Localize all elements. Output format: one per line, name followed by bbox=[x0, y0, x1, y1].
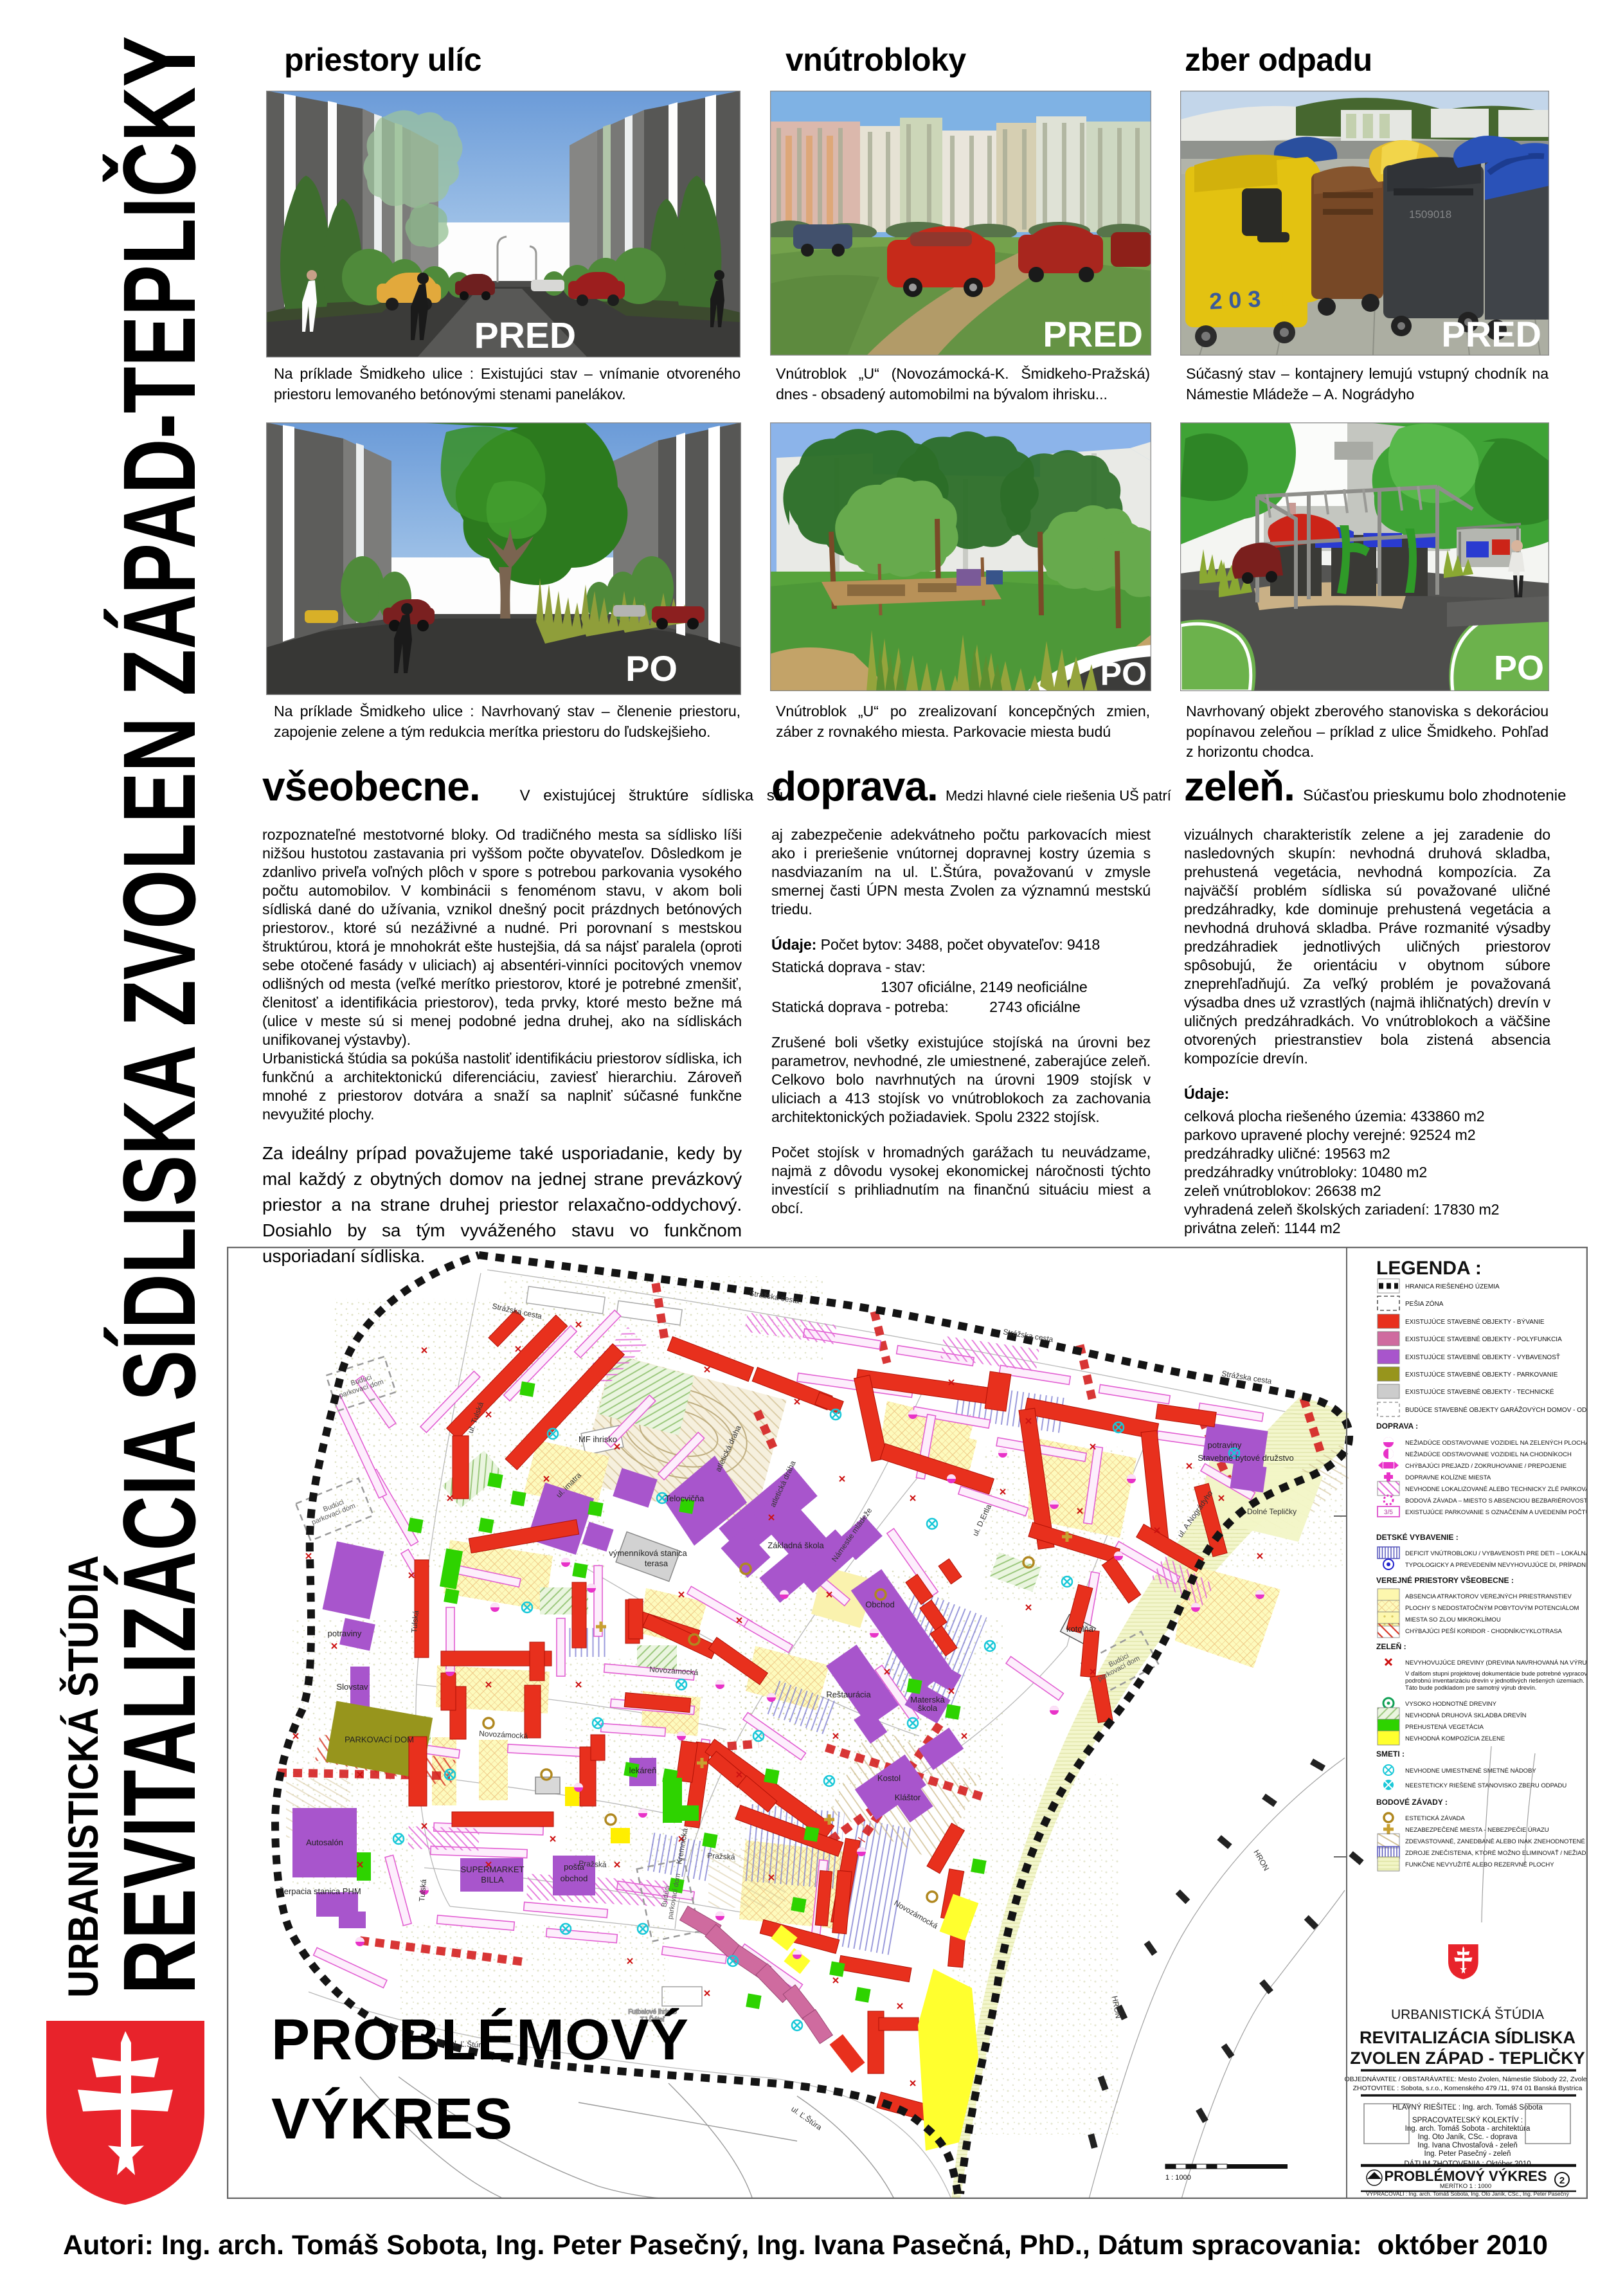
svg-text:1509018: 1509018 bbox=[1409, 208, 1451, 221]
svg-text:SPRACOVATEĽSKÝ KOLEKTÍV :: SPRACOVATEĽSKÝ KOLEKTÍV : bbox=[1412, 2116, 1523, 2124]
svg-text:Stavebné bytové družstvo: Stavebné bytové družstvo bbox=[1198, 1453, 1294, 1463]
svg-text:EXISTUJÚCE STAVEBNÉ OBJEKTY -: EXISTUJÚCE STAVEBNÉ OBJEKTY - TECHNICKÉ bbox=[1405, 1388, 1554, 1396]
svg-text:potraviny: potraviny bbox=[1208, 1440, 1242, 1450]
svg-text:ZDROJE ZNEČISTENIA, KTORÉ MOŽN: ZDROJE ZNEČISTENIA, KTORÉ MOŽNO ELIMINOV… bbox=[1405, 1850, 1588, 1857]
svg-text:VYSOKO HODNOTNÉ DREVINY: VYSOKO HODNOTNÉ DREVINY bbox=[1405, 1701, 1497, 1708]
svg-text:NEESTETICKY RIEŠENÉ STANOVISKO: NEESTETICKY RIEŠENÉ STANOVISKO ZBERU ODP… bbox=[1405, 1782, 1567, 1789]
svg-text:Kláštor: Kláštor bbox=[895, 1793, 921, 1802]
svg-text:potraviny: potraviny bbox=[328, 1629, 362, 1638]
svg-text:Dolné Tepličky: Dolné Tepličky bbox=[1247, 1507, 1297, 1516]
svg-text:NEŽIADÚCE ODSTAVOVANIE VOZIDIE: NEŽIADÚCE ODSTAVOVANIE VOZIDIEL NA CHODN… bbox=[1405, 1451, 1572, 1458]
svg-text:Ing. arch. Tomáš Sobota - arch: Ing. arch. Tomáš Sobota - architektúra bbox=[1405, 2125, 1531, 2133]
svg-text:URBANISTICKÁ ŠTÚDIA: URBANISTICKÁ ŠTÚDIA bbox=[59, 1555, 107, 1998]
svg-text:Autosalón: Autosalón bbox=[306, 1838, 343, 1847]
svg-text:Obchod: Obchod bbox=[865, 1600, 895, 1609]
svg-text:BILLA: BILLA bbox=[481, 1875, 504, 1885]
svg-text:Základná škola: Základná škola bbox=[768, 1541, 824, 1550]
svg-text:HRANICA RIEŠENÉHO ÚZEMIA: HRANICA RIEŠENÉHO ÚZEMIA bbox=[1405, 1282, 1500, 1290]
svg-text:DOPRAVA :: DOPRAVA : bbox=[1376, 1422, 1418, 1431]
svg-text:Ing. Oto Janík, CSc. - doprava: Ing. Oto Janík, CSc. - doprava bbox=[1418, 2133, 1518, 2141]
svg-text:Strážska cesta: Strážska cesta bbox=[1221, 1369, 1273, 1386]
svg-text:NEVHODNÁ KOMPOZÍCIA ZELENE: NEVHODNÁ KOMPOZÍCIA ZELENE bbox=[1405, 1735, 1505, 1742]
svg-text:2 0 3: 2 0 3 bbox=[1208, 285, 1261, 314]
svg-text:FUNKČNE NEVYUŽITÉ ALEBO REZERV: FUNKČNE NEVYUŽITÉ ALEBO REZERVNÉ PLOCHY bbox=[1405, 1861, 1554, 1868]
svg-text:SUPERMARKET: SUPERMARKET bbox=[461, 1865, 525, 1874]
svg-text:EXISTUJÚCE STAVEBNÉ OBJEKTY -: EXISTUJÚCE STAVEBNÉ OBJEKTY - VYBAVENOSŤ bbox=[1405, 1353, 1560, 1361]
svg-text:LEGENDA :: LEGENDA : bbox=[1376, 1258, 1482, 1279]
svg-text:lekáreň: lekáreň bbox=[629, 1766, 657, 1775]
svg-text:PROBLÉMOVÝ VÝKRES: PROBLÉMOVÝ VÝKRES bbox=[1384, 2168, 1547, 2184]
svg-text:BODOVÁ ZÁVADA – MIESTO S ABSEN: BODOVÁ ZÁVADA – MIESTO S ABSENCIOU BEZBA… bbox=[1405, 1497, 1588, 1505]
svg-text:ZDEVASTOVANÉ, ZANEDBANÉ ALEBO: ZDEVASTOVANÉ, ZANEDBANÉ ALEBO INAK ZNEHO… bbox=[1405, 1838, 1588, 1845]
svg-text:PO: PO bbox=[625, 648, 678, 689]
svg-text:BODOVÉ ZÁVADY :: BODOVÉ ZÁVADY : bbox=[1376, 1797, 1448, 1807]
svg-text:EXISTUJÚCE STAVEBNÉ OBJEKTY -: EXISTUJÚCE STAVEBNÉ OBJEKTY - POLYFUNKCI… bbox=[1405, 1335, 1562, 1343]
svg-text:NEVHODNE UMIESTNENÉ SMETNÉ NÁD: NEVHODNE UMIESTNENÉ SMETNÉ NÁDOBY bbox=[1405, 1767, 1536, 1775]
svg-text:výmenníková stanica: výmenníková stanica bbox=[609, 1548, 687, 1558]
svg-text:Slovstav: Slovstav bbox=[336, 1682, 368, 1692]
svg-text:PO: PO bbox=[1100, 656, 1147, 691]
svg-text:HRON: HRON bbox=[1252, 1849, 1271, 1873]
svg-text:CHÝBAJÚCI PREJAZD / ZOKRUHOVAN: CHÝBAJÚCI PREJAZD / ZOKRUHOVANIE / PREPO… bbox=[1405, 1463, 1567, 1470]
svg-text:MF ihrisko: MF ihrisko bbox=[579, 1434, 617, 1444]
svg-text:MERÍTKO 1 : 1000: MERÍTKO 1 : 1000 bbox=[1440, 2183, 1491, 2190]
svg-text:terasa: terasa bbox=[645, 1559, 669, 1568]
svg-text:NEŽIADÚCE ODSTAVOVANIE VOZIDIE: NEŽIADÚCE ODSTAVOVANIE VOZIDIEL NA ZELEN… bbox=[1405, 1440, 1588, 1447]
svg-text:PO: PO bbox=[1494, 649, 1544, 687]
svg-text:TYPOLOGICKY A PREVEDENÍM NEVYH: TYPOLOGICKY A PREVEDENÍM NEVYHOVUJÚCE DI… bbox=[1405, 1562, 1588, 1569]
svg-text:PRED: PRED bbox=[474, 315, 576, 356]
svg-text:URBANISTICKÁ ŠTÚDIA: URBANISTICKÁ ŠTÚDIA bbox=[1391, 2007, 1544, 2022]
svg-text:1 : 1000: 1 : 1000 bbox=[1165, 2174, 1191, 2182]
svg-text:Tulská: Tulská bbox=[417, 1879, 428, 1902]
svg-text:Pražská: Pražská bbox=[707, 1851, 735, 1861]
svg-text:Novozámocká: Novozámocká bbox=[893, 1898, 940, 1930]
svg-text:Telocvičňa: Telocvičňa bbox=[665, 1494, 705, 1503]
svg-text:PREHUSTENÁ VEGETÁCIA: PREHUSTENÁ VEGETÁCIA bbox=[1405, 1724, 1484, 1731]
svg-text:PEŠIA ZÓNA: PEŠIA ZÓNA bbox=[1405, 1299, 1444, 1308]
svg-text:PRED: PRED bbox=[1441, 314, 1541, 354]
svg-text:Ing. Ivana Chvostaľová - zeleň: Ing. Ivana Chvostaľová - zeleň bbox=[1417, 2142, 1518, 2149]
svg-text:CHÝBAJÚCI PEŠÍ KORIDOR - CHODN: CHÝBAJÚCI PEŠÍ KORIDOR - CHODNÍK/CYKLOTR… bbox=[1405, 1628, 1563, 1635]
svg-text:Reštaurácia: Reštaurácia bbox=[826, 1690, 871, 1699]
svg-text:DOPRAVNE KOLÍZNE MIESTA: DOPRAVNE KOLÍZNE MIESTA bbox=[1405, 1474, 1491, 1481]
svg-text:HLAVNÝ RIEŠITEĽ : Ing. arch. T: HLAVNÝ RIEŠITEĽ : Ing. arch. Tomáš Sobot… bbox=[1392, 2103, 1543, 2111]
svg-text:EXISTUJÚCE STAVEBNÉ OBJEKTY -: EXISTUJÚCE STAVEBNÉ OBJEKTY - PARKOVANIE bbox=[1405, 1370, 1558, 1379]
svg-text:NEZABEZPEČENÉ MIESTA - NEBEZPE: NEZABEZPEČENÉ MIESTA - NEBEZPEČIE ÚRAZU bbox=[1405, 1827, 1549, 1834]
svg-text:obchod: obchod bbox=[561, 1874, 588, 1883]
svg-text:ZELEŇ :: ZELEŇ : bbox=[1376, 1641, 1406, 1651]
svg-text:Táto bude podkladom pre samotn: Táto bude podkladom pre samotný výrub dr… bbox=[1405, 1685, 1536, 1692]
svg-text:ZHOTOVITEĽ : Sobota, s.r.o., K: ZHOTOVITEĽ : Sobota, s.r.o., Komenského … bbox=[1353, 2084, 1583, 2092]
svg-text:NEVYHOVUJÚCE DREVINY (DREVINA: NEVYHOVUJÚCE DREVINY (DREVINA NAVRHOVANÁ… bbox=[1405, 1659, 1588, 1667]
svg-text:EXISTUJÚCE STAVEBNÉ OBJEKTY -: EXISTUJÚCE STAVEBNÉ OBJEKTY - BÝVANIE bbox=[1405, 1317, 1545, 1326]
svg-text:Kostol: Kostol bbox=[877, 1773, 901, 1783]
svg-text:PRED: PRED bbox=[1043, 314, 1143, 354]
svg-text:Čerpacia stanica PHM: Čerpacia stanica PHM bbox=[278, 1886, 361, 1896]
svg-text:PARKOVACÍ DOM: PARKOVACÍ DOM bbox=[345, 1735, 414, 1744]
svg-text:ABSENCIA ATRAKTOROV VEREJNÝCH: ABSENCIA ATRAKTOROV VEREJNÝCH PRIESTRANS… bbox=[1405, 1593, 1572, 1600]
svg-text:2: 2 bbox=[1559, 2175, 1565, 2186]
svg-text:REVITALIZÁCIA SÍDLISKA: REVITALIZÁCIA SÍDLISKA bbox=[1360, 2027, 1576, 2047]
svg-text:podrobnú inventarizáciu drevín: podrobnú inventarizáciu drevín v jednotl… bbox=[1405, 1677, 1585, 1685]
svg-text:pošta: pošta bbox=[564, 1862, 585, 1872]
svg-text:škola: škola bbox=[918, 1703, 938, 1713]
svg-text:BUDÚCE STAVEBNÉ OBJEKTY GARÁŽO: BUDÚCE STAVEBNÉ OBJEKTY GARÁŽOVÝCH DOMOV… bbox=[1405, 1406, 1588, 1414]
svg-text:NEVHODNÁ DRUHOVÁ SKLADBA DREVÍ: NEVHODNÁ DRUHOVÁ SKLADBA DREVÍN bbox=[1405, 1712, 1527, 1719]
svg-text:Ing. Peter Pasečný - zeleň: Ing. Peter Pasečný - zeleň bbox=[1424, 2150, 1511, 2158]
svg-text:ul. Ľ.Štúra: ul. Ľ.Štúra bbox=[789, 2104, 824, 2132]
svg-text:DEFICIT VNÚTROBLOKU / VYBAVENO: DEFICIT VNÚTROBLOKU / VYBAVENOSTI PRE DE… bbox=[1405, 1550, 1588, 1557]
svg-text:PLOCHY S NEDOSTATOČNÝM POBYTOV: PLOCHY S NEDOSTATOČNÝM POBYTOVÝM POTENCI… bbox=[1405, 1605, 1579, 1612]
svg-text:SMETI :: SMETI : bbox=[1376, 1749, 1405, 1758]
svg-text:ZVOLEN ZÁPAD - TEPLIČKY: ZVOLEN ZÁPAD - TEPLIČKY bbox=[1350, 2048, 1585, 2068]
svg-text:MIESTA SO ZLOU MIKROKLÍMOU: MIESTA SO ZLOU MIKROKLÍMOU bbox=[1405, 1616, 1501, 1623]
svg-text:VEREJNÉ PRIESTORY VŠEOBECNE :: VEREJNÉ PRIESTORY VŠEOBECNE : bbox=[1376, 1575, 1514, 1585]
svg-text:kotolňa: kotolňa bbox=[1066, 1624, 1094, 1634]
svg-text:DETSKÉ VYBAVENIE :: DETSKÉ VYBAVENIE : bbox=[1376, 1532, 1459, 1542]
svg-text:NEVHODNE LOKALIZOVANÉ ALEBO TE: NEVHODNE LOKALIZOVANÉ ALEBO TECHNICKY ZL… bbox=[1405, 1486, 1588, 1493]
svg-text:OBJEDNÁVATEĽ / OBSTARÁVATEĽ:: OBJEDNÁVATEĽ / OBSTARÁVATEĽ: Mesto Zvole… bbox=[1344, 2075, 1588, 2083]
svg-text:3/5: 3/5 bbox=[1384, 1509, 1393, 1516]
svg-text:EXISTUJÚCE PARKOVANIE S OZNAČE: EXISTUJÚCE PARKOVANIE S OZNAČENÍM A UVED… bbox=[1405, 1509, 1588, 1516]
svg-text:V ďalšom stupni projektovej do: V ďalšom stupni projektovej dokumentácie… bbox=[1405, 1670, 1588, 1677]
svg-text:ESTETICKÁ ZÁVADA: ESTETICKÁ ZÁVADA bbox=[1405, 1815, 1465, 1822]
svg-text:Novozámocká: Novozámocká bbox=[479, 1729, 528, 1740]
svg-text:REVITALIZÁCIA SÍDLISKA ZVOLEN: REVITALIZÁCIA SÍDLISKA ZVOLEN ZÁPAD-TEPL… bbox=[102, 36, 217, 1994]
